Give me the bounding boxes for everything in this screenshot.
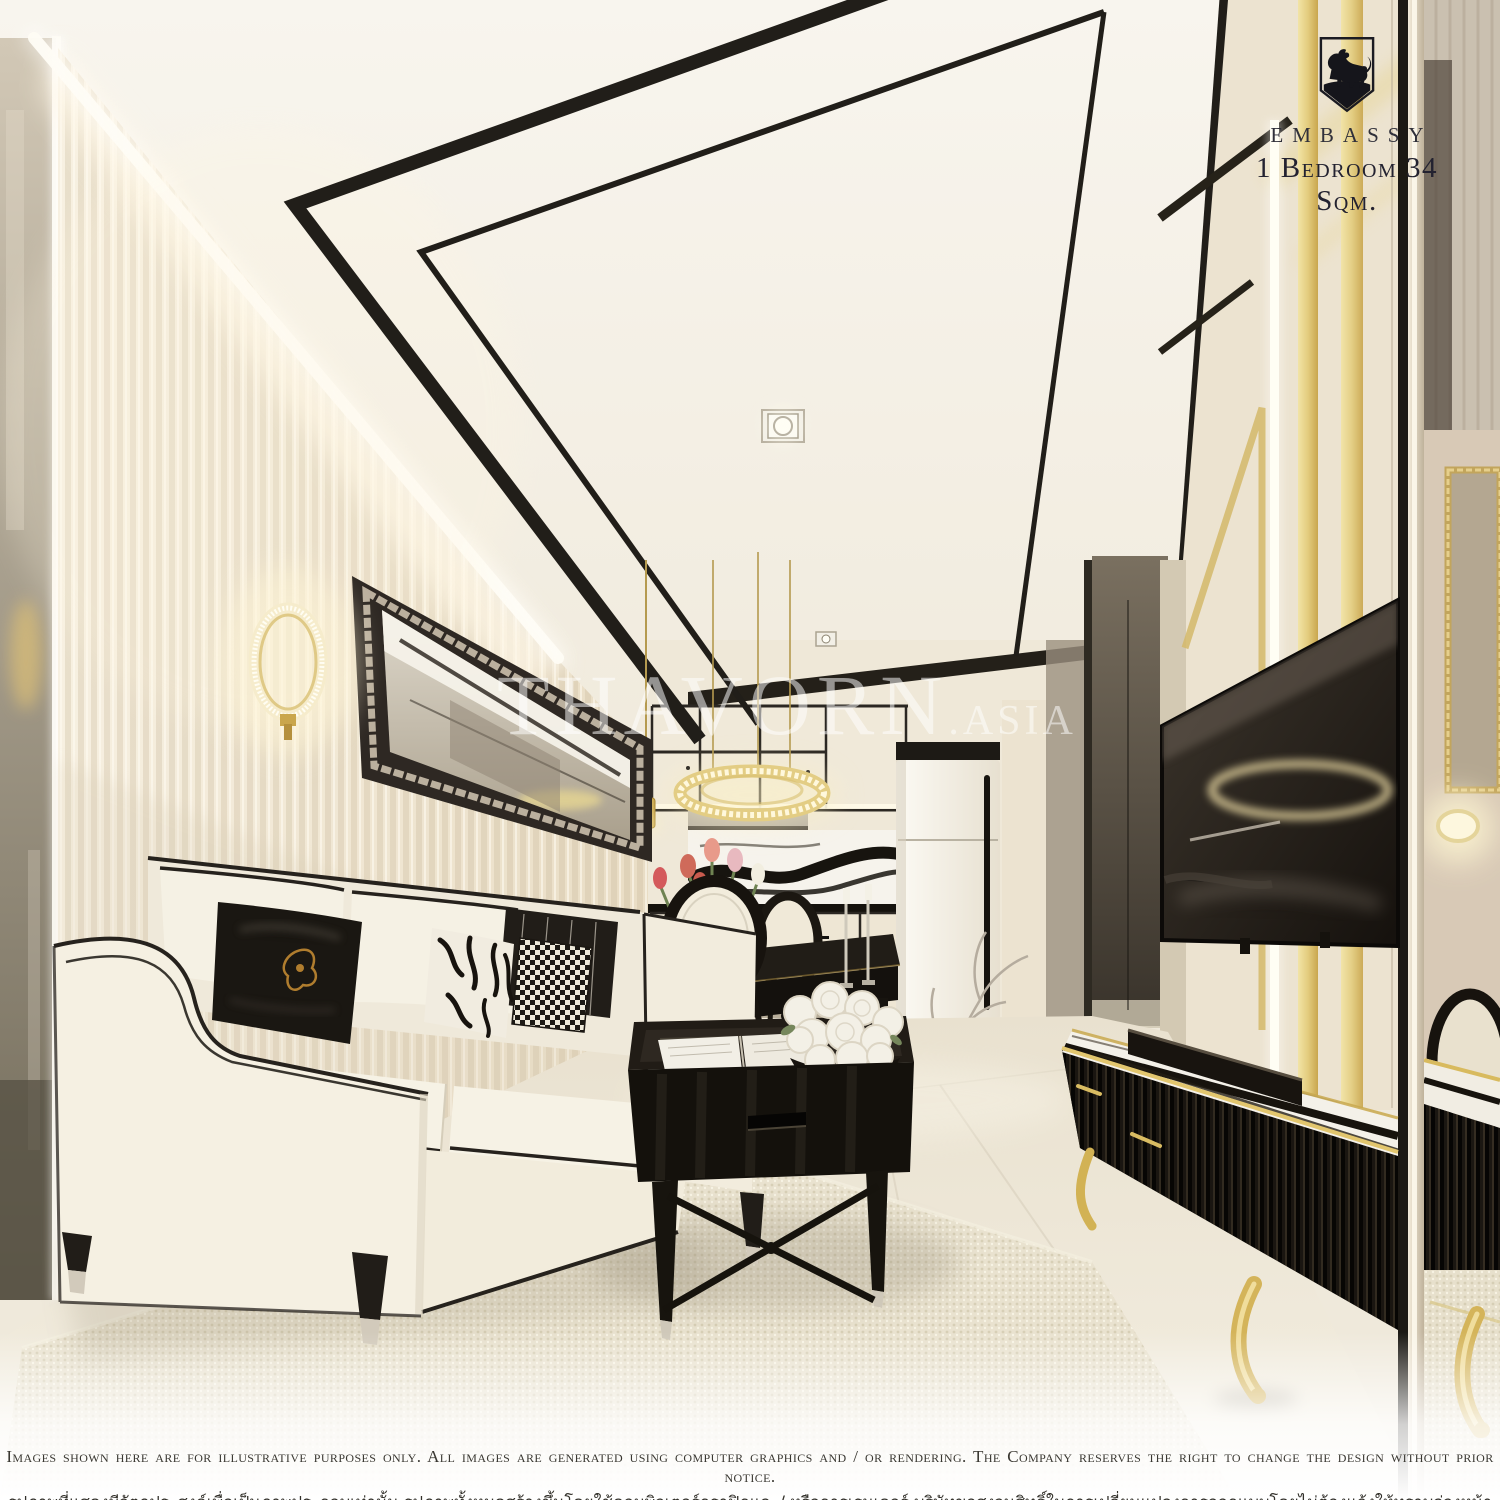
refrigerator [896,742,1000,1020]
unit-label: 1 Bedroom 34 Sqm. [1227,152,1467,218]
brand-logo: EMBASSY 1 Bedroom 34 Sqm. [1227,36,1467,218]
pillow-houndstooth [512,938,592,1032]
brand-name: EMBASSY [1227,123,1467,148]
reflected-gold-lamp [10,600,42,710]
reflected-mirror-frame [1448,470,1500,790]
left-mirror-column [0,36,64,1300]
render-image: EMBASSY 1 Bedroom 34 Sqm. THAVORN.ASIA I… [0,0,1500,1500]
wall-sconce [218,567,358,757]
disclaimer-english: Images shown here are for illustrative p… [0,1447,1500,1487]
watermark-main: THAVORN [497,657,948,753]
disclaimer: Images shown here are for illustrative p… [0,1447,1500,1500]
lion-crest-icon [1318,36,1376,114]
tall-cabinet [1002,700,1048,1030]
hallway [1092,556,1168,1028]
pillow-black-satin [212,902,362,1044]
pillow-zebra [424,928,514,1038]
disclaimer-thai: รูปภาพที่แสดงมีวัตถุประสงค์เพื่อเป็นภาพป… [0,1490,1500,1500]
watermark: THAVORN.ASIA [497,662,1077,748]
watermark-suffix: .ASIA [948,698,1077,744]
lion-silhouette [1328,49,1367,87]
fridge-handle [984,775,990,1010]
wall-mirror-right [1398,0,1500,1500]
